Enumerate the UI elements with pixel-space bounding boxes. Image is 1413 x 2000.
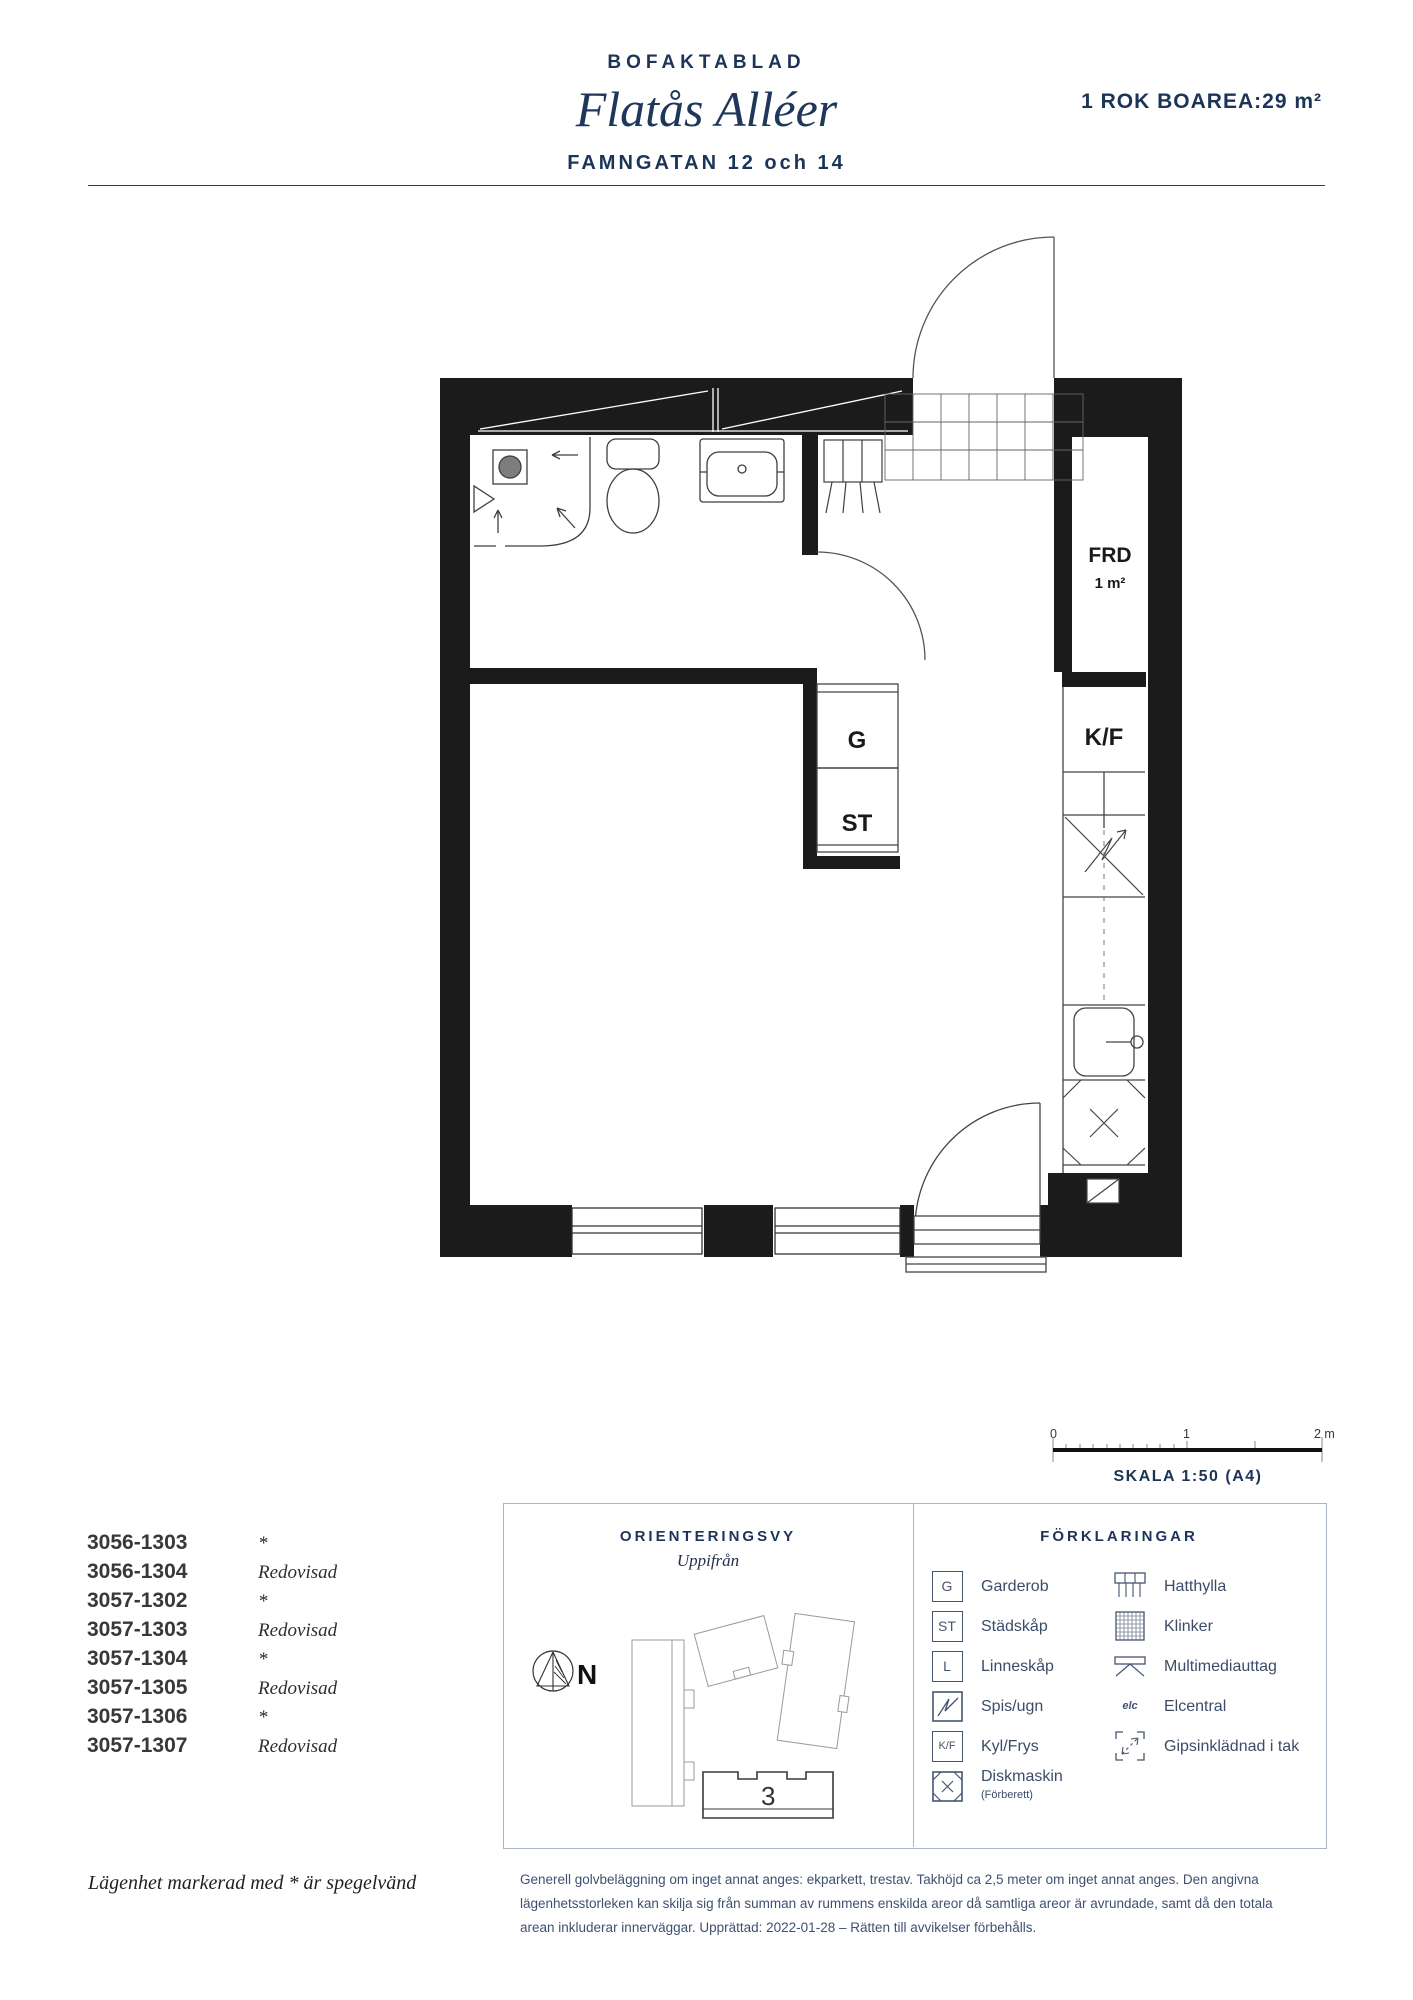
wall-segments xyxy=(440,378,1182,1257)
apartment-number: 3056-1304 xyxy=(87,1557,258,1586)
closet-st-label: ST xyxy=(842,810,873,837)
apartment-number: 3057-1303 xyxy=(87,1615,258,1644)
general-note: Generell golvbeläggning om inget annat a… xyxy=(520,1868,1288,1940)
scale-tick-1: 1 xyxy=(1183,1427,1190,1441)
hatthylla-icon xyxy=(824,440,882,513)
legend-title: FÖRKLARINGAR xyxy=(913,1528,1325,1545)
legend-row: G Garderob xyxy=(930,1566,1063,1606)
garderob-icon: G xyxy=(932,1571,963,1602)
panel-divider xyxy=(913,1503,914,1847)
scale-text: SKALA 1:50 (A4) xyxy=(1053,1468,1323,1486)
legend-label: Kyl/Frys xyxy=(981,1738,1039,1755)
entry-door xyxy=(913,237,1054,378)
spis-icon xyxy=(932,1691,963,1722)
orientation-map: N 3 xyxy=(505,1595,905,1830)
legend-row: Gipsinklädnad i tak xyxy=(1113,1726,1299,1766)
hatthylla-icon-legend xyxy=(1114,1572,1146,1600)
stadskap-symbol: ST xyxy=(938,1618,956,1634)
legend-column-left: G Garderob ST Städskåp L Linneskåp Spis/… xyxy=(930,1566,1063,1806)
floor-drain-icon xyxy=(493,450,527,484)
legend-label: Gipsinklädnad i tak xyxy=(1164,1738,1299,1755)
apartment-size-info: 1 ROK BOAREA:29 m² xyxy=(1022,90,1322,114)
floor-plan: G ST FRD 1 m² K/F xyxy=(430,200,1190,1280)
apartment-status: * xyxy=(258,1649,268,1670)
legend-row: ST Städskåp xyxy=(930,1606,1063,1646)
list-item: 3057-1304* xyxy=(87,1644,337,1673)
apartment-number: 3057-1307 xyxy=(87,1731,258,1760)
apartment-list: 3056-1303* 3056-1304Redovisad 3057-1302*… xyxy=(87,1528,337,1760)
toilet-icon xyxy=(607,439,659,533)
floor-outlet-icon xyxy=(1087,1179,1119,1203)
apartment-status: Redovisad xyxy=(258,1620,337,1641)
list-item: 3057-1307Redovisad xyxy=(87,1731,337,1760)
legend-row: elc Elcentral xyxy=(1113,1686,1299,1726)
elcentral-icon: elc xyxy=(1122,1700,1137,1712)
legend-label: Spis/ugn xyxy=(981,1698,1043,1715)
closet-g-label: G xyxy=(848,727,867,754)
apartment-status: * xyxy=(258,1591,268,1612)
legend-label: Linneskåp xyxy=(981,1658,1054,1675)
legend-label: Klinker xyxy=(1164,1618,1213,1635)
kf-label: K/F xyxy=(1085,724,1124,751)
slope-arrows xyxy=(474,451,578,533)
legend-label: Diskmaskin(Förberett) xyxy=(981,1768,1063,1804)
apartment-number: 3057-1304 xyxy=(87,1644,258,1673)
document-type-title: BOFAKTABLAD xyxy=(0,52,1413,74)
legend-row: K/F Kyl/Frys xyxy=(930,1726,1063,1766)
legend-label: Elcentral xyxy=(1164,1698,1226,1715)
scale-bar: 0 1 2 meter xyxy=(1035,1420,1335,1468)
list-item: 3057-1303Redovisad xyxy=(87,1615,337,1644)
linneskap-symbol: L xyxy=(943,1658,951,1674)
orientation-subtitle: Uppifrån xyxy=(503,1551,913,1571)
kitchen-sink-icon xyxy=(1074,1008,1143,1076)
diskmaskin-icon xyxy=(932,1771,963,1802)
garderob-symbol: G xyxy=(942,1578,953,1594)
legend-label: Multimediauttag xyxy=(1164,1658,1277,1675)
orientation-title: ORIENTERINGSVY xyxy=(503,1528,913,1545)
legend-row: Klinker xyxy=(1113,1606,1299,1646)
legend-label-text: Diskmaskin xyxy=(981,1768,1063,1785)
legend-label: Städskåp xyxy=(981,1618,1048,1635)
legend-row: Hatthylla xyxy=(1113,1566,1299,1606)
list-item: 3057-1302* xyxy=(87,1586,337,1615)
bathroom-door xyxy=(817,552,925,660)
compass-icon xyxy=(533,1651,573,1691)
apartment-status: * xyxy=(258,1533,268,1554)
apartment-status: Redovisad xyxy=(258,1736,337,1757)
legend-row: Diskmaskin(Förberett) xyxy=(930,1766,1063,1806)
apartment-status: Redovisad xyxy=(258,1678,337,1699)
klinker-floor xyxy=(885,394,1083,480)
balcony-door xyxy=(906,1103,1046,1272)
dishwasher-icon xyxy=(1063,1080,1145,1165)
list-item: 3057-1305Redovisad xyxy=(87,1673,337,1702)
street-address: FAMNGATAN 12 och 14 xyxy=(0,152,1413,175)
washbasin-icon xyxy=(700,439,784,502)
mirror-note: Lägenhet markerad med * är spegelvänd xyxy=(88,1872,416,1895)
legend-row: Spis/ugn xyxy=(930,1686,1063,1726)
legend-column-right: Hatthylla Klinker Multimediauttag elc El… xyxy=(1113,1566,1299,1766)
building-number-label: 3 xyxy=(761,1781,775,1811)
apartment-number: 3057-1306 xyxy=(87,1702,258,1731)
gips-icon xyxy=(1114,1730,1146,1762)
apartment-number: 3057-1305 xyxy=(87,1673,258,1702)
legend-note: (Förberett) xyxy=(981,1789,1033,1801)
apartment-status: Redovisad xyxy=(258,1562,337,1583)
linneskap-icon: L xyxy=(932,1651,963,1682)
legend-label: Hatthylla xyxy=(1164,1578,1226,1595)
kylfrys-icon: K/F xyxy=(932,1731,963,1762)
klinker-icon xyxy=(1115,1611,1145,1641)
scale-tick-2: 2 meter xyxy=(1314,1427,1335,1441)
legend-label: Garderob xyxy=(981,1578,1049,1595)
bofaktablad-page: { "header": { "doc_type": "BOFAKTABLAD",… xyxy=(0,0,1413,2000)
list-item: 3056-1303* xyxy=(87,1528,337,1557)
apartment-number: 3056-1303 xyxy=(87,1528,258,1557)
legend-row: Multimediauttag xyxy=(1113,1646,1299,1686)
frd-label: FRD xyxy=(1088,544,1131,567)
header-divider xyxy=(88,185,1325,186)
shower-partition xyxy=(474,437,590,546)
frd-area-label: 1 m² xyxy=(1095,575,1126,592)
north-label: N xyxy=(577,1659,597,1690)
apartment-status: * xyxy=(258,1707,268,1728)
legend-row: L Linneskåp xyxy=(930,1646,1063,1686)
stadskap-icon: ST xyxy=(932,1611,963,1642)
multimedia-icon xyxy=(1113,1655,1147,1677)
list-item: 3057-1306* xyxy=(87,1702,337,1731)
list-item: 3056-1304Redovisad xyxy=(87,1557,337,1586)
apartment-number: 3057-1302 xyxy=(87,1586,258,1615)
kylfrys-symbol: K/F xyxy=(938,1740,955,1752)
